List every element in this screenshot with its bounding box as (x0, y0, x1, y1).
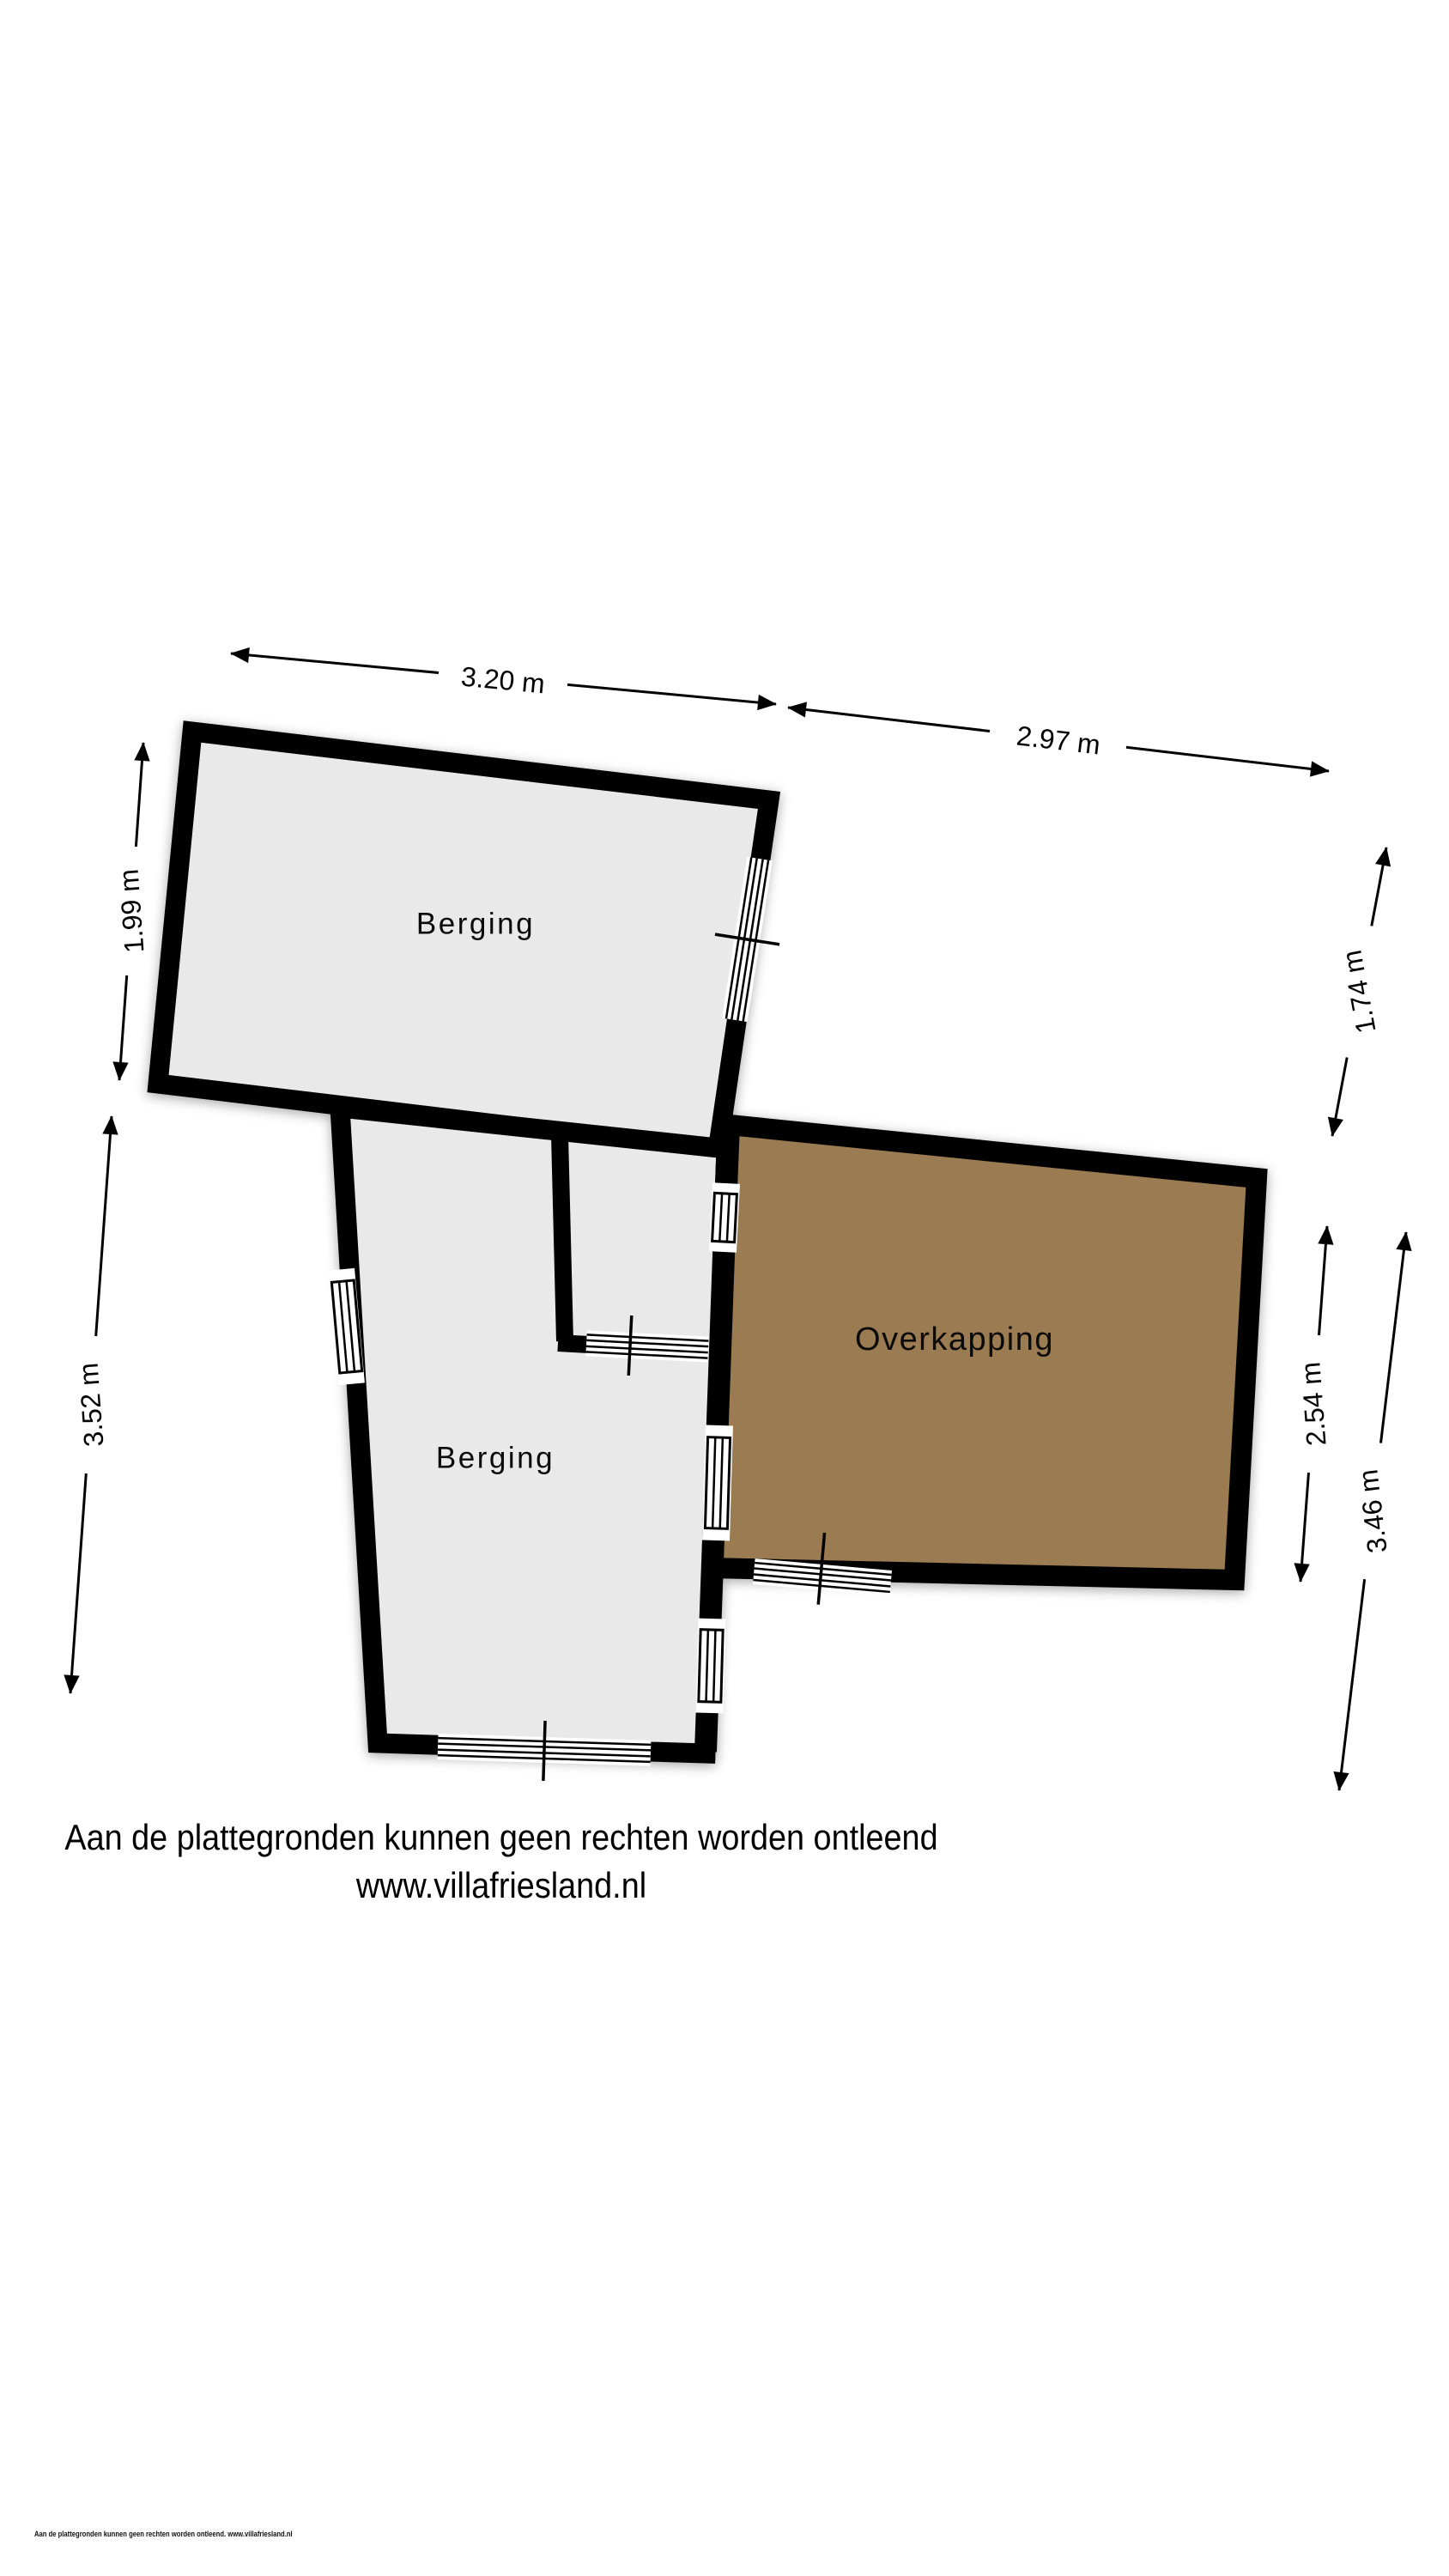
floor-plan-page: Berging Berging Overkapping 3.20 m 2.97 … (0, 0, 1449, 2576)
dimension-top-right-width: 2.97 m (788, 708, 1329, 771)
dimension-label: 1.74 m (1336, 948, 1381, 1036)
dimension-upper-right-height: 1.74 m (1332, 848, 1386, 1136)
floor-plan-canvas: Berging Berging Overkapping 3.20 m 2.97 … (0, 0, 1449, 2576)
dimension-label: 3.52 m (73, 1362, 110, 1448)
dimension-upper-left-height: 1.99 m (113, 743, 150, 1080)
dimension-overkapping-height: 2.54 m (1294, 1226, 1331, 1582)
website-text: www.villafriesland.nl (50, 1865, 952, 1906)
room-label-berging-top: Berging (416, 908, 535, 941)
disclaimer-text: Aan de plattegronden kunnen geen rechten… (50, 1817, 952, 1858)
berging-bottom-room (340, 1108, 726, 1753)
window-symbol-bottom-berging-east-upper (702, 1425, 733, 1541)
dimension-top-width: 3.20 m (231, 653, 776, 704)
dimension-label: 3.46 m (1352, 1467, 1392, 1554)
interior-wall-stub (558, 1343, 589, 1345)
dimension-label: 2.97 m (1015, 720, 1101, 760)
fineprint-text: Aan de plattegronden kunnen geen rechten… (34, 2530, 293, 2538)
building-outline (158, 732, 1257, 1753)
dimension-label: 1.99 m (113, 868, 150, 954)
dimension-label: 2.54 m (1294, 1361, 1331, 1447)
dimension-label: 3.20 m (460, 661, 547, 700)
berging-top-room (158, 732, 769, 1151)
dimension-total-right-height: 3.46 m (1339, 1232, 1406, 1790)
window-symbol-side-space-east (709, 1182, 740, 1253)
room-label-overkapping: Overkapping (855, 1321, 1054, 1358)
dimension-lower-left-height: 3.52 m (70, 1116, 112, 1693)
window-symbol-bottom-berging-east-lower (695, 1619, 725, 1714)
room-label-berging-bottom: Berging (436, 1442, 555, 1475)
interior-wall (560, 1135, 565, 1341)
